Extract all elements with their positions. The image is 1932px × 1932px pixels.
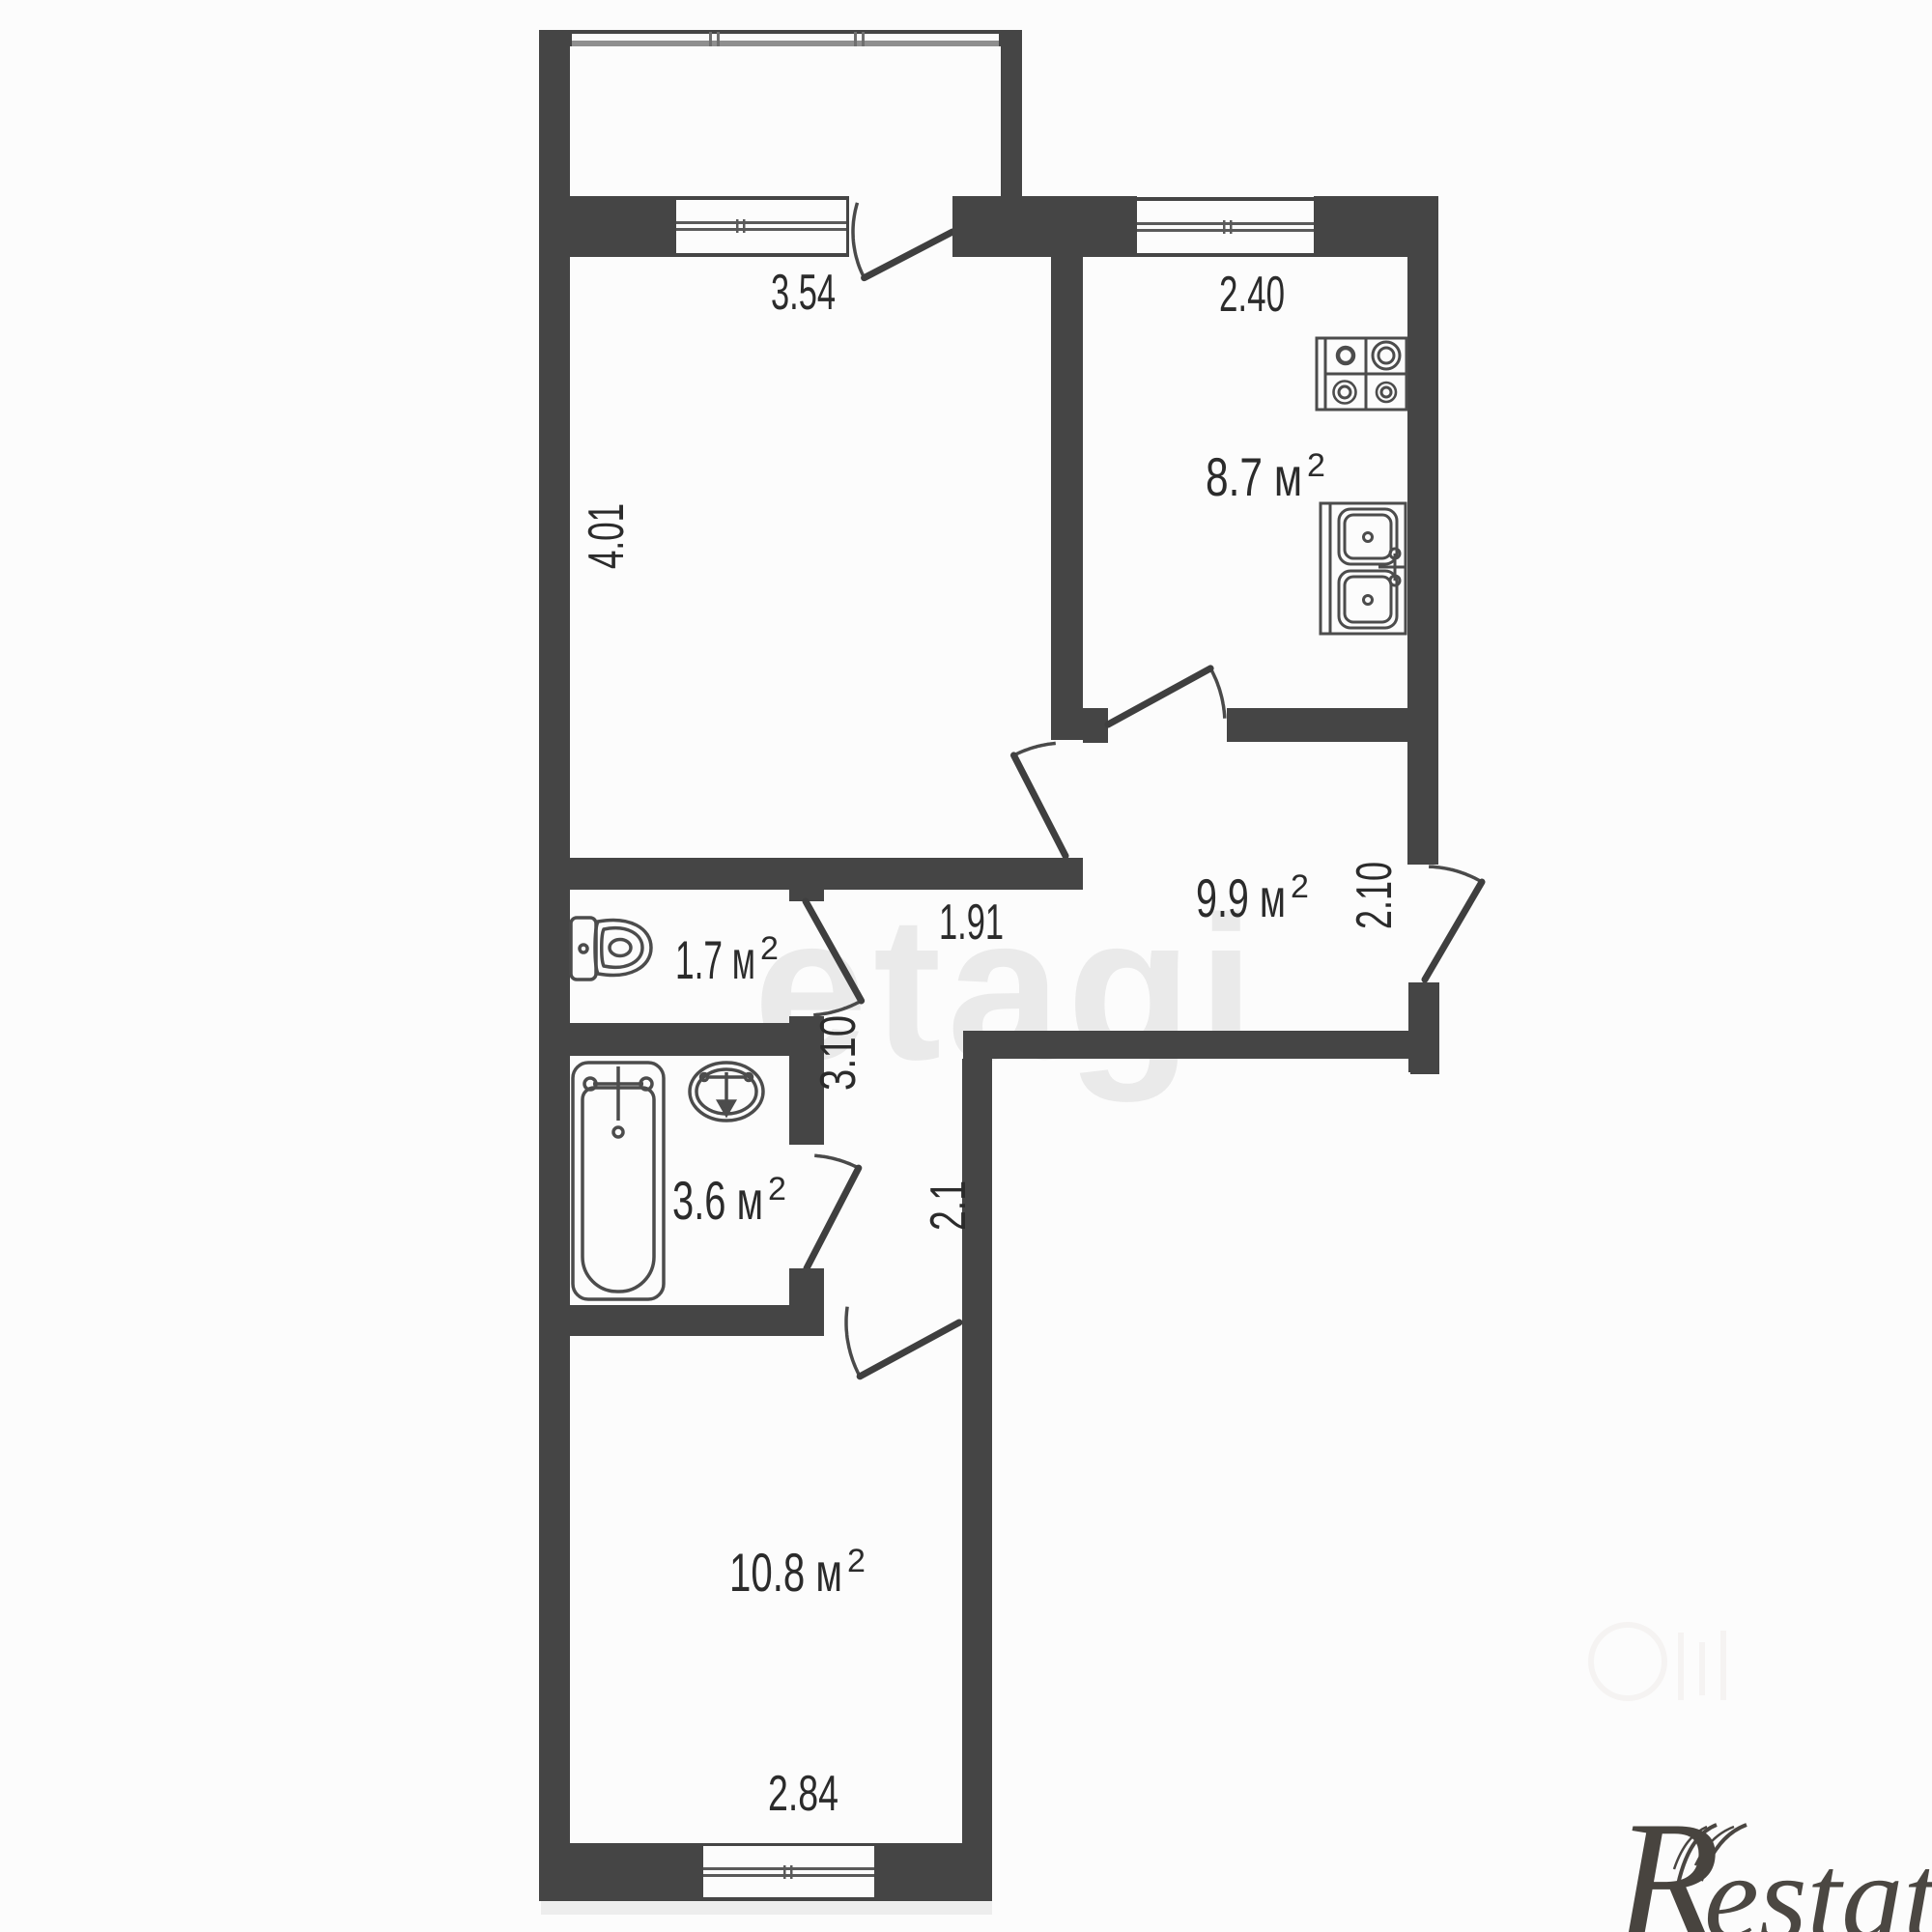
svg-text:4.01: 4.01 xyxy=(579,503,635,569)
svg-text:3.10: 3.10 xyxy=(810,1015,867,1091)
svg-text:3.54: 3.54 xyxy=(771,265,836,321)
svg-text:2: 2 xyxy=(760,930,779,967)
svg-text:2.84: 2.84 xyxy=(768,1766,838,1822)
svg-text:2: 2 xyxy=(847,1543,866,1579)
svg-text:8.7 м: 8.7 м xyxy=(1206,446,1302,507)
svg-text:9.9 м: 9.9 м xyxy=(1196,867,1286,928)
svg-text:1.7 м: 1.7 м xyxy=(675,929,755,990)
svg-text:2: 2 xyxy=(768,1171,786,1207)
svg-text:2: 2 xyxy=(1307,447,1325,484)
svg-text:estate: estate xyxy=(1704,1829,1932,1932)
svg-text:2.40: 2.40 xyxy=(1219,267,1285,323)
svg-text:3.6 м: 3.6 м xyxy=(672,1170,763,1231)
svg-text:2: 2 xyxy=(1291,868,1309,905)
svg-text:10.8 м: 10.8 м xyxy=(729,1542,842,1603)
svg-text:1.91: 1.91 xyxy=(939,895,1004,951)
svg-text:2.10: 2.10 xyxy=(1347,862,1403,929)
svg-text:2.1: 2.1 xyxy=(921,1180,977,1231)
